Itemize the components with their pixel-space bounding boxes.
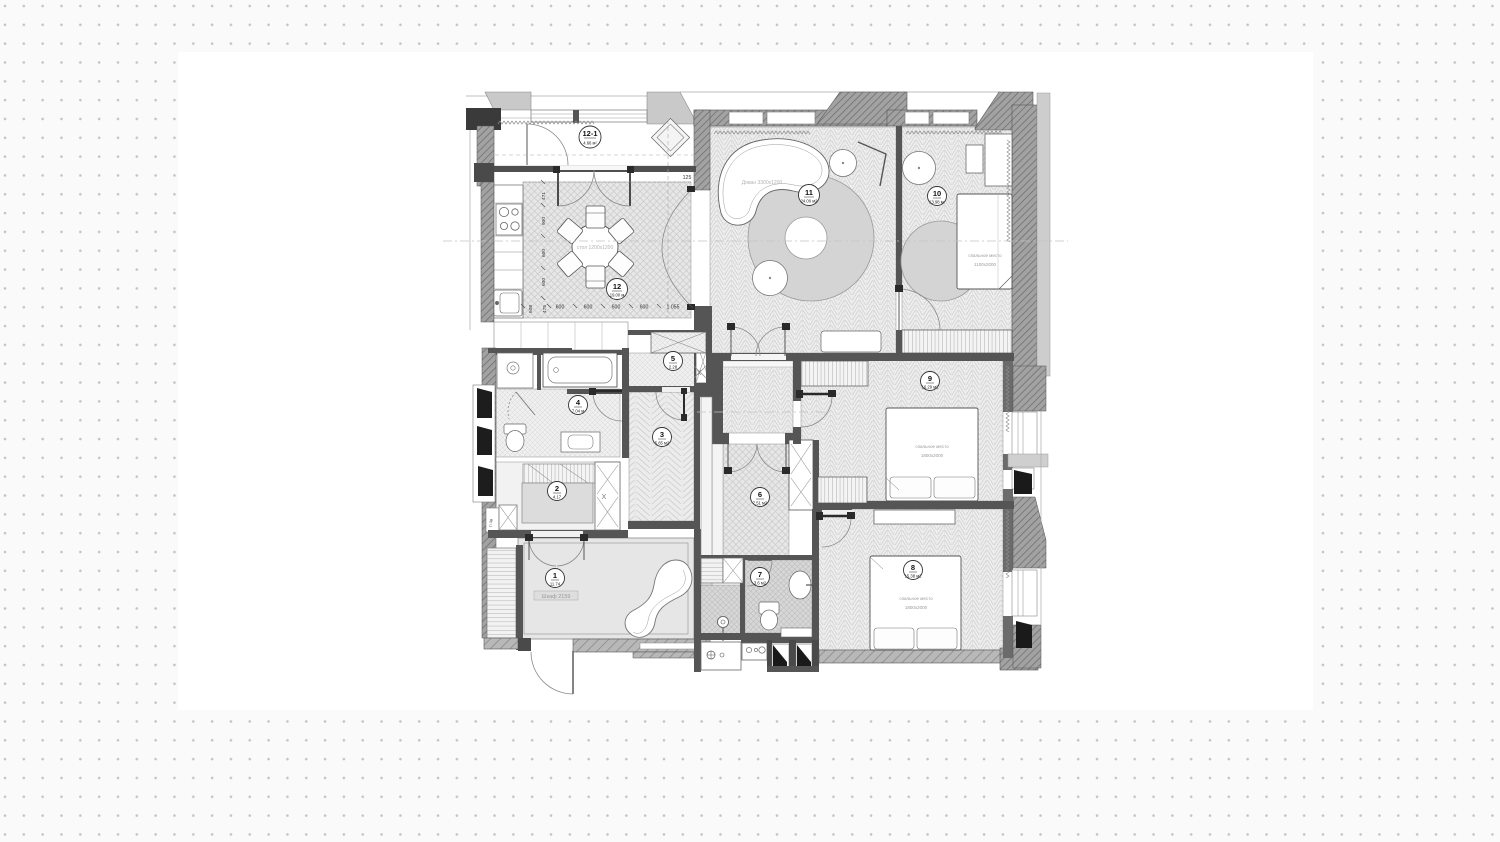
svg-text:X: X [697, 370, 702, 377]
svg-text:4.66 м²: 4.66 м² [583, 141, 597, 146]
svg-text:125: 125 [683, 175, 692, 181]
svg-text:П.3д: П.3д [489, 518, 493, 527]
svg-text:1 055: 1 055 [667, 305, 680, 311]
svg-text:11.74: 11.74 [550, 582, 561, 587]
svg-text:Диван 3300x1200: Диван 3300x1200 [742, 180, 783, 186]
svg-text:508: 508 [528, 305, 534, 313]
svg-text:спальное место: спальное место [968, 253, 1002, 258]
svg-text:X: X [602, 494, 607, 501]
svg-text:3: 3 [660, 430, 664, 439]
svg-text:13.98 м.: 13.98 м. [929, 200, 945, 205]
svg-text:Шкаф 2159: Шкаф 2159 [542, 594, 571, 600]
svg-text:стол 1200x1200: стол 1200x1200 [577, 245, 614, 251]
svg-text:7.04 м: 7.04 м [572, 409, 584, 414]
svg-text:7: 7 [758, 570, 762, 579]
svg-text:10: 10 [933, 189, 941, 198]
svg-text:8: 8 [911, 563, 915, 572]
svg-text:2.28: 2.28 [669, 365, 678, 370]
svg-text:1800x2000: 1800x2000 [921, 453, 944, 458]
svg-text:600: 600 [541, 278, 547, 286]
svg-text:2: 2 [555, 484, 559, 493]
svg-text:12: 12 [613, 282, 621, 291]
svg-text:11: 11 [805, 188, 813, 197]
svg-text:1800x2000: 1800x2000 [905, 605, 928, 610]
svg-text:7.51 м2: 7.51 м2 [753, 501, 768, 506]
svg-text:4.17: 4.17 [553, 495, 562, 500]
svg-text:спальное место: спальное место [899, 596, 933, 601]
svg-text:600: 600 [556, 305, 565, 311]
svg-text:5: 5 [671, 354, 675, 363]
svg-text:600: 600 [612, 305, 621, 311]
svg-text:3.6 м2: 3.6 м2 [754, 581, 767, 586]
svg-text:471: 471 [541, 192, 547, 200]
svg-text:24.00 м2: 24.00 м2 [801, 199, 819, 204]
svg-text:600: 600 [640, 305, 649, 311]
svg-text:16.29 м2: 16.29 м2 [922, 385, 940, 390]
svg-text:спальное место: спальное место [915, 444, 949, 449]
svg-text:600: 600 [584, 305, 593, 311]
svg-text:475: 475 [542, 305, 548, 313]
svg-text:9: 9 [928, 374, 932, 383]
svg-text:600: 600 [541, 249, 547, 257]
svg-text:15.38 м2: 15.38 м2 [905, 574, 923, 579]
svg-text:5.65 м2: 5.65 м2 [655, 441, 670, 446]
svg-text:19.00 м: 19.00 м [610, 293, 625, 298]
svg-text:1: 1 [553, 571, 557, 580]
svg-text:6: 6 [758, 490, 762, 499]
svg-text:12-1: 12-1 [582, 129, 597, 138]
svg-text:900: 900 [541, 217, 547, 225]
svg-text:1100x2000: 1100x2000 [974, 262, 996, 267]
